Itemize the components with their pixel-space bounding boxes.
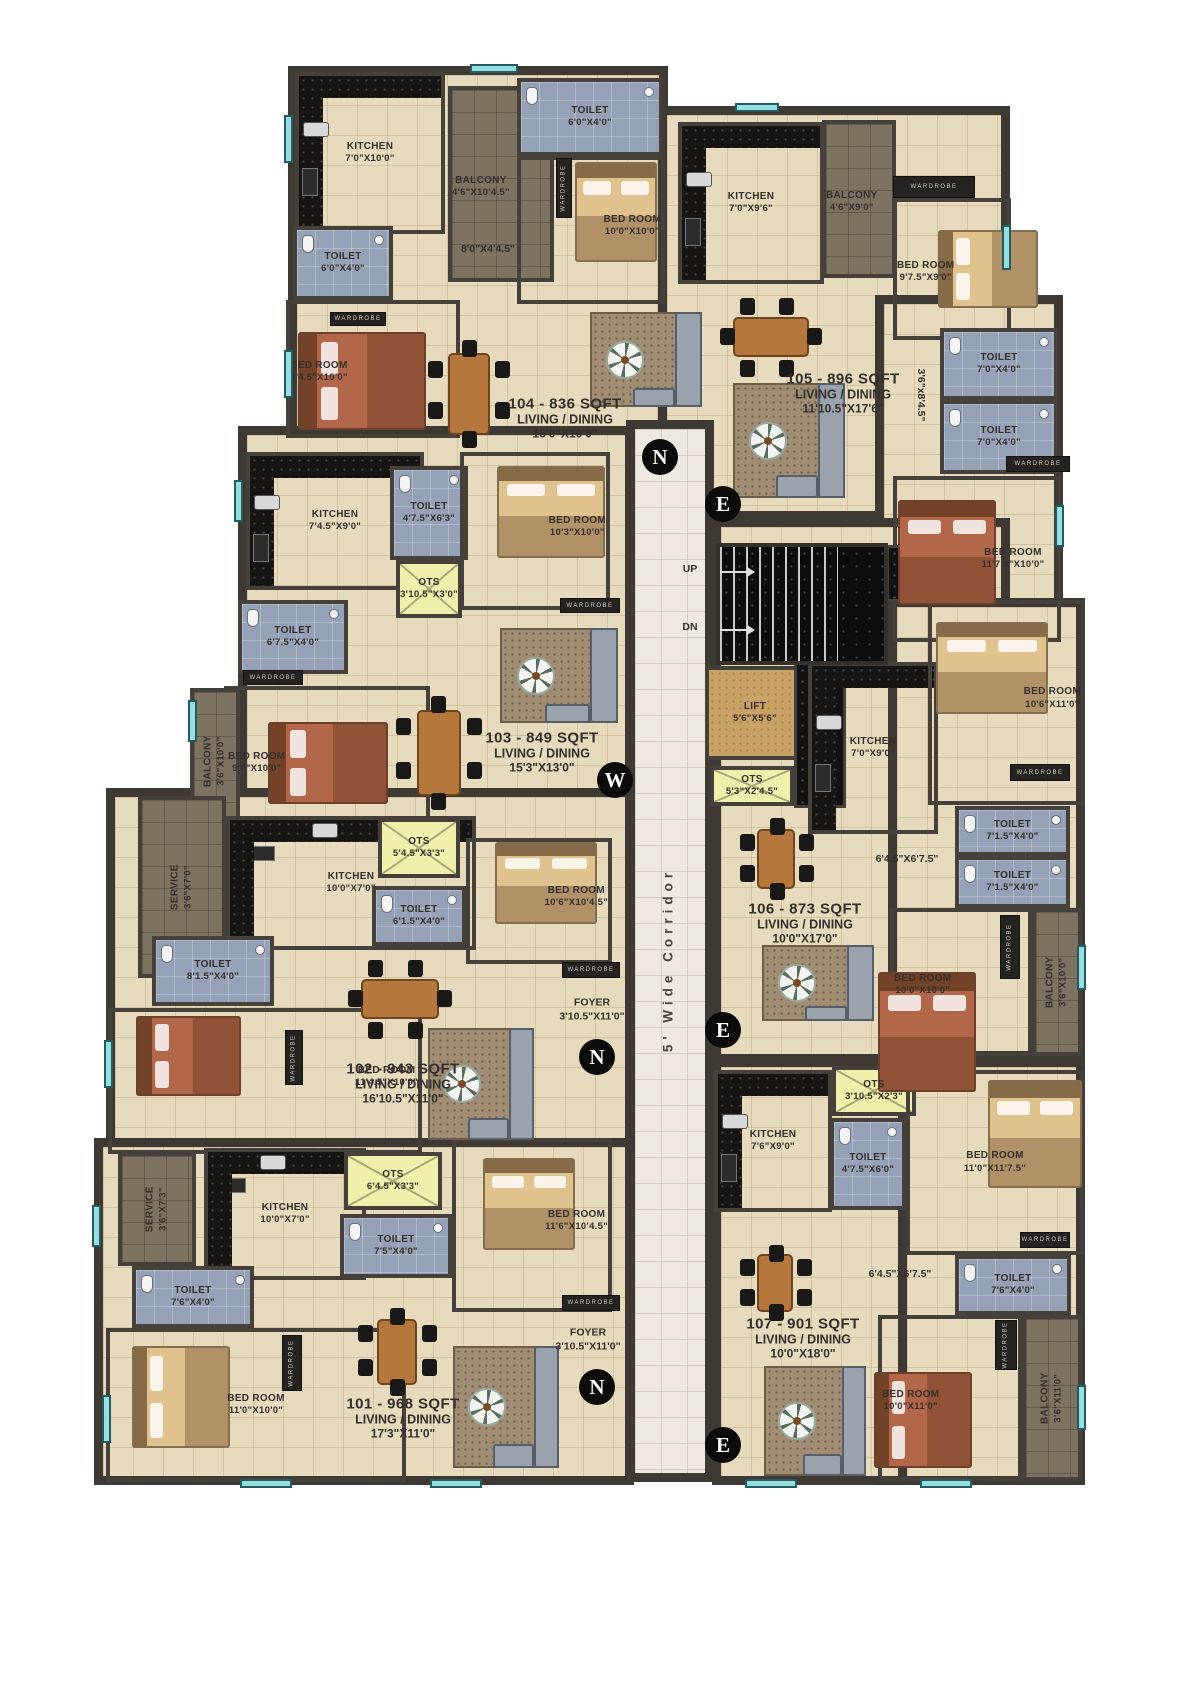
room-label: BED ROOM10'6"X10'4.5"	[545, 885, 608, 909]
room-dimensions: 9'6"X10'0"	[228, 763, 285, 775]
room-name: TOILET	[977, 352, 1021, 365]
toilet-basin-icon	[235, 1275, 245, 1285]
label-line: 16'10.5"X11'0"	[346, 1092, 459, 1106]
room-dimensions: 10'0"X10'0"	[894, 985, 951, 997]
bed-tan	[575, 162, 657, 262]
room-label: TOILET7'0"X4'0"	[977, 425, 1021, 449]
kitchen-counter	[682, 126, 706, 280]
room-label: TOILET6'0"X4'0"	[321, 251, 365, 275]
room-dimensions: 7'0"X9'6"	[728, 203, 775, 215]
bed-headboard	[499, 468, 603, 481]
room-label: OTS5'4.5"X3'3"	[393, 836, 445, 860]
room-name: BALCONY	[203, 735, 216, 787]
room-name: BALCONY	[452, 175, 510, 188]
room-dimensions: 4'6"X9'0"	[826, 202, 878, 214]
wardrobe: WARDROBE	[330, 312, 386, 326]
room-name: BALCONY	[1040, 1372, 1053, 1424]
room-toilet: TOILET6'0"X4'0"	[293, 226, 393, 300]
dining-chair	[437, 990, 452, 1007]
window	[430, 1479, 482, 1488]
label-line: 3'10.5"X11'0"	[559, 1010, 624, 1024]
label-line: 8'0"X4'4.5"	[461, 243, 515, 257]
room-dimensions: 3'6"X11'0"	[1052, 1372, 1064, 1424]
bed-headboard	[134, 1348, 147, 1446]
dining-chair	[799, 834, 814, 851]
bed-pillow-icon	[956, 238, 969, 265]
bed-pillow-icon	[998, 640, 1037, 652]
toilet-wc-icon	[399, 475, 411, 493]
room-dimensions: 4'6"X10'4.5"	[452, 187, 510, 199]
label-line: 10'0"X18'0"	[746, 1347, 859, 1361]
room-label: BED ROOM11'0"X10'0"	[227, 1393, 284, 1417]
dining-chair	[358, 1325, 373, 1342]
label-line: 101 - 968 SQFT	[346, 1396, 459, 1413]
bed-tan	[132, 1346, 230, 1448]
dining-set	[350, 960, 450, 1038]
toilet-wc-icon	[302, 235, 314, 253]
sofa	[842, 1366, 866, 1476]
room-dimensions: 7'0"X10'0"	[345, 153, 394, 165]
room-dimensions: 10'0"X11'0"	[882, 1401, 939, 1413]
room-name: KITCHEN	[850, 736, 897, 749]
kitchen-sink-icon	[816, 715, 842, 730]
toilet-wc-icon	[141, 1275, 153, 1293]
dining-chair	[390, 1379, 405, 1396]
room-kitchen: KITCHEN7'0"X9'6"	[678, 122, 824, 284]
room-dimensions: 10'0"X7'0"	[260, 1214, 309, 1226]
bed-blanket	[927, 1374, 970, 1466]
room-label: OTS6'4.5"X3'3"	[367, 1169, 419, 1193]
wardrobe-label: WARDROBE	[1007, 923, 1013, 970]
up-arrow-icon	[720, 571, 748, 573]
room-name: SERVICE	[145, 1186, 158, 1232]
dining-chair	[720, 328, 735, 345]
room-dimensions: 7'0"X4'0"	[977, 364, 1021, 376]
room-lift: LIFT5'6"X5'6"	[705, 666, 805, 760]
room-label: BALCONY3'6"X10'0"	[203, 735, 227, 787]
toilet-wc-icon	[964, 815, 976, 833]
bed-pillow-icon	[492, 1176, 524, 1188]
dining-chair	[467, 718, 482, 735]
room-name: OTS	[367, 1169, 419, 1182]
dining-table	[757, 1254, 793, 1312]
room-dimensions: 7'0"X9'0"	[850, 748, 897, 760]
room-label: TOILET6'7.5"X4'0"	[267, 625, 319, 649]
room-kitchen: KITCHEN7'0"X10'0"	[295, 72, 445, 234]
dining-chair	[422, 1325, 437, 1342]
wardrobe: WARDROBE	[1020, 1232, 1070, 1248]
label-line: 106 - 873 SQFT	[748, 901, 861, 918]
room-kitchen: KITCHEN7'6"X9'0"	[714, 1070, 832, 1212]
toilet-wc-icon	[161, 945, 173, 963]
window	[188, 700, 197, 742]
ceiling-fan-icon	[517, 657, 555, 695]
kitchen-counter	[812, 666, 934, 688]
dining-chair	[368, 1022, 383, 1039]
compass-letter: E	[716, 1018, 730, 1043]
bed-headboard	[938, 624, 1046, 637]
corridor-label: 5' Wide Corridor	[661, 868, 676, 1052]
dining-chair	[740, 1289, 755, 1306]
compass-letter: N	[589, 1045, 604, 1070]
room-dimensions: 7'4.5"X9'0"	[309, 521, 361, 533]
room-dimensions: 7'6"X4'0"	[171, 1297, 215, 1309]
room-dimensions: 7'0"X4'0"	[977, 437, 1021, 449]
toilet-basin-icon	[887, 1127, 897, 1137]
room-toilet: TOILET8'1.5"X4'0"	[152, 936, 274, 1006]
label-line: 15'3"X13'0"	[485, 761, 598, 775]
window	[240, 1479, 292, 1488]
window	[234, 480, 243, 522]
room-toilet: TOILET6'0"X4'0"	[517, 78, 663, 156]
room-name: TOILET	[374, 1234, 418, 1247]
toilet-wc-icon	[381, 895, 393, 913]
dining-chair	[467, 762, 482, 779]
room-name: BED ROOM	[1024, 686, 1081, 699]
kitchen-stove-icon	[721, 1154, 737, 1182]
sofa	[468, 1118, 508, 1140]
room-dimensions: 10'6"X10'4.5"	[545, 897, 608, 909]
label-line: DN	[682, 621, 697, 635]
dining-chair	[807, 328, 822, 345]
room-label: KITCHEN10'0"X7'0"	[326, 871, 375, 895]
room-label: OTS3'10.5"X2'3"	[845, 1079, 903, 1103]
room-label: TOILET6'0"X4'0"	[568, 105, 612, 129]
toilet-wc-icon	[949, 409, 961, 427]
room-label: SERVICE3'6"X7'0"	[170, 864, 194, 910]
ceiling-fan-icon	[606, 341, 644, 379]
bed-pillow-icon	[956, 273, 969, 300]
room-dimensions: 8'1.5"X4'0"	[187, 971, 239, 983]
room-name: TOILET	[977, 425, 1021, 438]
bed-pillow-icon	[150, 1403, 163, 1438]
compass-e-icon: E	[705, 1427, 741, 1463]
dining-set	[740, 820, 812, 898]
room-label: TOILET7'6"X4'0"	[171, 1285, 215, 1309]
compass-e-icon: E	[705, 486, 741, 522]
bed-rust	[268, 722, 388, 804]
toilet-wc-icon	[964, 1264, 976, 1282]
dining-set	[428, 342, 510, 446]
room-dimensions: 10'0"X7'0"	[326, 883, 375, 895]
unit-area-label: 107 - 901 SQFTLIVING / DINING10'0"X18'0"	[746, 1316, 859, 1361]
room-label: TOILET7'6"X4'0"	[991, 1273, 1035, 1297]
room-name: BED ROOM	[228, 751, 285, 764]
toilet-wc-icon	[526, 87, 538, 105]
bed-blanket	[992, 232, 1036, 306]
window	[284, 350, 293, 398]
room-kitchen: KITCHEN7'0"X9'0"	[808, 662, 938, 834]
room-label: BED ROOM10'6"X11'0"	[1024, 686, 1081, 710]
bed-pillow-icon	[155, 1024, 169, 1051]
dining-table	[733, 317, 809, 358]
room-name: KITCHEN	[260, 1202, 309, 1215]
unit-area-label: 105 - 896 SQFTLIVING / DINING11'10.5"X17…	[786, 371, 899, 416]
dining-chair	[799, 865, 814, 882]
bed-pillow-icon	[947, 640, 986, 652]
toilet-basin-icon	[255, 945, 265, 955]
wardrobe: WARDROBE	[285, 1030, 303, 1085]
bed-rust	[874, 1372, 972, 1468]
living-lounge	[500, 628, 618, 723]
bed-tan	[483, 1158, 575, 1250]
bed-pillow-icon	[290, 768, 306, 796]
bed-headboard	[497, 844, 595, 856]
bed-headboard	[138, 1018, 152, 1094]
dining-chair	[769, 1245, 784, 1262]
room-dimensions: 6'4.5"X3'3"	[367, 1181, 419, 1193]
room-dimensions: 3'10.5"X2'3"	[845, 1091, 903, 1103]
bed-blanket	[333, 724, 386, 802]
room-name: OTS	[400, 577, 458, 590]
bed-pillow-icon	[534, 1176, 566, 1188]
wardrobe: WARDROBE	[562, 962, 620, 978]
compass-n-icon: N	[642, 439, 678, 475]
window	[735, 103, 779, 112]
room-label: KITCHEN7'0"X9'6"	[728, 191, 775, 215]
living-lounge	[453, 1346, 559, 1468]
room-name: TOILET	[986, 819, 1038, 832]
dining-table	[377, 1319, 418, 1385]
bed-pillow-icon	[997, 1101, 1029, 1116]
room-name: BED ROOM	[897, 260, 954, 273]
label-line: 16'0"X10'0"	[508, 427, 621, 441]
room-label: BED ROOM10'3"X10'0"	[549, 515, 606, 539]
room-dimensions: 3'6"X10'0"	[215, 735, 227, 787]
room-dimensions: 10'6"X11'0"	[1024, 699, 1081, 711]
dining-chair	[462, 340, 477, 357]
room-dimensions: 11'7.5"X10'0"	[982, 559, 1045, 571]
toilet-basin-icon	[449, 475, 459, 485]
room-dimensions: 4'7.5"X6'3"	[403, 513, 455, 525]
room-label: KITCHEN7'6"X9'0"	[750, 1129, 797, 1153]
toilet-basin-icon	[1051, 865, 1061, 875]
living-lounge	[762, 945, 874, 1021]
room-label: TOILET7'5"X4'0"	[374, 1234, 418, 1258]
unit-area-label: 106 - 873 SQFTLIVING / DINING10'0"X17'0"	[748, 901, 861, 946]
wardrobe-label: WARDROBE	[1003, 1321, 1009, 1368]
dining-chair	[462, 431, 477, 448]
bed-blanket	[900, 557, 994, 603]
corridor-label-text: 5' Wide Corridor	[661, 868, 676, 1052]
dining-chair	[396, 718, 411, 735]
room-dimensions: 7'1.5"X4'0"	[986, 882, 1038, 894]
toilet-wc-icon	[247, 609, 259, 627]
kitchen-counter	[812, 666, 836, 830]
kitchen-counter	[718, 1074, 828, 1096]
room-label: TOILET7'1.5"X4'0"	[986, 870, 1038, 894]
room-name: BED ROOM	[982, 547, 1045, 560]
bed-headboard	[485, 1160, 573, 1173]
room-name: TOILET	[991, 1273, 1035, 1286]
room-dimensions: 10'3"X10'0"	[549, 527, 606, 539]
stair-treads	[720, 547, 838, 661]
toilet-basin-icon	[329, 609, 339, 619]
room-name: TOILET	[393, 904, 445, 917]
dimension-label: 6'4.5"X6'7.5"	[869, 1268, 932, 1282]
label-line: LIVING / DINING	[485, 747, 598, 761]
label-line: 3'10.5"X11'0"	[555, 1340, 620, 1354]
kitchen-sink-icon	[686, 172, 712, 187]
compass-n-icon: N	[579, 1369, 615, 1405]
room-label: OTS5'3"X2'4.5"	[726, 774, 778, 798]
toilet-wc-icon	[949, 337, 961, 355]
dining-set	[740, 1246, 810, 1320]
unit-area-label: 103 - 849 SQFTLIVING / DINING15'3"X13'0"	[485, 730, 598, 775]
room-name: TOILET	[842, 1152, 894, 1165]
room-name: BED ROOM	[894, 973, 951, 986]
down-arrow-icon	[720, 629, 748, 631]
dining-set	[396, 698, 482, 808]
label-line: LIVING / DINING	[346, 1413, 459, 1427]
room-dimensions: 5'4.5"X3'3"	[393, 848, 445, 860]
dimension-label: FOYER3'10.5"X11'0"	[555, 1326, 620, 1353]
bed-pillow-icon	[953, 520, 987, 534]
toilet-basin-icon	[1052, 1264, 1062, 1274]
living-lounge	[590, 312, 702, 407]
room-ots: OTS3'10.5"X3'0"	[396, 560, 462, 618]
room-label: BED ROOM9'6"X10'0"	[228, 751, 285, 775]
kitchen-counter	[208, 1152, 232, 1276]
unit-area-label: 102 - 943 SQFTLIVING / DINING16'10.5"X11…	[346, 1061, 459, 1106]
bed-headboard	[577, 164, 655, 178]
bed-pillow-icon	[557, 484, 594, 496]
toilet-basin-icon	[1039, 337, 1049, 347]
bed-pillow-icon	[888, 995, 922, 1011]
dining-chair	[740, 834, 755, 851]
dining-table	[361, 979, 439, 1020]
room-name: TOILET	[986, 870, 1038, 883]
toilet-basin-icon	[447, 895, 457, 905]
sofa	[803, 1454, 842, 1476]
sofa	[805, 1006, 848, 1021]
wardrobe: WARDROBE	[1010, 764, 1070, 781]
room-name: TOILET	[171, 1285, 215, 1298]
bed-headboard	[990, 1082, 1080, 1098]
toilet-basin-icon	[1051, 815, 1061, 825]
room-dimensions: 5'3"X2'4.5"	[726, 786, 778, 798]
compass-e-icon: E	[705, 1012, 741, 1048]
compass-letter: E	[716, 492, 730, 517]
room-ots: OTS6'4.5"X3'3"	[344, 1152, 442, 1210]
label-line: 3'6"x8'4.5"	[913, 369, 927, 422]
sofa	[493, 1444, 533, 1468]
room-toilet: TOILET7'1.5"X4'0"	[955, 856, 1070, 908]
window	[104, 1040, 113, 1088]
label-line: 103 - 849 SQFT	[485, 730, 598, 747]
window	[745, 1479, 797, 1488]
label-line: UP	[683, 563, 698, 577]
room-ots: OTS5'4.5"X3'3"	[378, 818, 460, 878]
wardrobe-label: WARDROBE	[910, 184, 957, 190]
room-dimensions: 3'6"X7'3"	[157, 1186, 169, 1232]
room-name: BED ROOM	[604, 214, 661, 227]
wardrobe: WARDROBE	[562, 1295, 620, 1311]
wardrobe: WARDROBE	[995, 1320, 1017, 1370]
ceiling-fan-icon	[749, 422, 787, 460]
kitchen-sink-icon	[312, 823, 338, 838]
room-toilet: TOILET7'0"X4'0"	[940, 328, 1058, 400]
sofa	[509, 1028, 534, 1140]
sofa	[776, 475, 819, 498]
kitchen-stove-icon	[815, 764, 831, 792]
room-dimensions: 3'10.5"X3'0"	[400, 589, 458, 601]
room-label: SERVICE3'6"X7'3"	[145, 1186, 169, 1232]
ceiling-fan-icon	[778, 1402, 816, 1440]
room-name: KITCHEN	[309, 509, 361, 522]
bed-rust	[136, 1016, 241, 1096]
dimension-label: UP	[683, 563, 698, 577]
room-toilet: TOILET6'7.5"X4'0"	[238, 600, 348, 674]
kitchen-stove-icon	[685, 218, 701, 246]
room-name: BED ROOM	[545, 1209, 608, 1222]
wardrobe-label: WARDROBE	[1016, 770, 1063, 776]
dining-chair	[770, 883, 785, 900]
bed-pillow-icon	[1040, 1101, 1072, 1116]
room-dimensions: 10'0"X10'0"	[604, 226, 661, 238]
room-toilet: TOILET7'6"X4'0"	[955, 1255, 1071, 1315]
room-label: BED ROOM10'0"X10'0"	[604, 214, 661, 238]
unit-area-label: 101 - 968 SQFTLIVING / DINING17'3"X11'0"	[346, 1396, 459, 1441]
dining-chair	[428, 361, 443, 378]
compass-letter: E	[716, 1433, 730, 1458]
label-line: LIVING / DINING	[508, 413, 621, 427]
room-toilet: TOILET7'1.5"X4'0"	[955, 806, 1070, 856]
room-balcony: BALCONY4'6"X9'0"	[822, 120, 896, 278]
dining-table	[448, 353, 491, 434]
room-label: BED ROOM11'7.5"X10'0"	[982, 547, 1045, 571]
wardrobe-label: WARDROBE	[334, 316, 381, 322]
room-name: BED ROOM	[545, 885, 608, 898]
sofa	[534, 1346, 559, 1468]
room-dimensions: 3'6"X7'0"	[182, 864, 194, 910]
kitchen-counter	[299, 76, 441, 98]
room-balcony: BALCONY3'6"X11'0"	[1022, 1315, 1082, 1481]
wardrobe: WARDROBE	[556, 158, 572, 218]
dining-chair	[740, 865, 755, 882]
bed-blanket	[185, 1348, 228, 1446]
room-label: BED ROOM10'0"X11'0"	[882, 1389, 939, 1413]
compass-letter: N	[589, 1375, 604, 1400]
window	[284, 115, 293, 163]
room-dimensions: 7'1.5"X4'0"	[986, 831, 1038, 843]
room-dimensions: 6'1.5"X4'0"	[393, 916, 445, 928]
bed-pillow-icon	[505, 858, 540, 869]
room-name: OTS	[726, 774, 778, 787]
ceiling-fan-icon	[778, 964, 816, 1002]
room-label: OTS3'10.5"X3'0"	[400, 577, 458, 601]
label-line: 6'4.5"X6'7.5"	[876, 853, 939, 867]
dimension-label: FOYER3'10.5"X11'0"	[559, 996, 624, 1023]
kitchen-sink-icon	[260, 1155, 286, 1170]
dining-chair	[358, 1359, 373, 1376]
room-dimensions: 6'0"X4'0"	[568, 117, 612, 129]
wardrobe-label: WARDROBE	[289, 1339, 295, 1386]
room-name: BALCONY	[826, 190, 878, 203]
label-line: 105 - 896 SQFT	[786, 371, 899, 388]
window	[1002, 225, 1011, 270]
bed-tan	[497, 466, 605, 558]
toilet-basin-icon	[1039, 409, 1049, 419]
dining-chair	[740, 298, 755, 315]
room-balcony: BALCONY3'6"X10'0"	[1032, 908, 1082, 1056]
window	[1077, 1385, 1086, 1430]
dining-chair	[422, 1359, 437, 1376]
room-label: TOILET6'1.5"X4'0"	[393, 904, 445, 928]
staircase	[716, 543, 888, 665]
bed-pillow-icon	[908, 520, 942, 534]
room-name: TOILET	[568, 105, 612, 118]
